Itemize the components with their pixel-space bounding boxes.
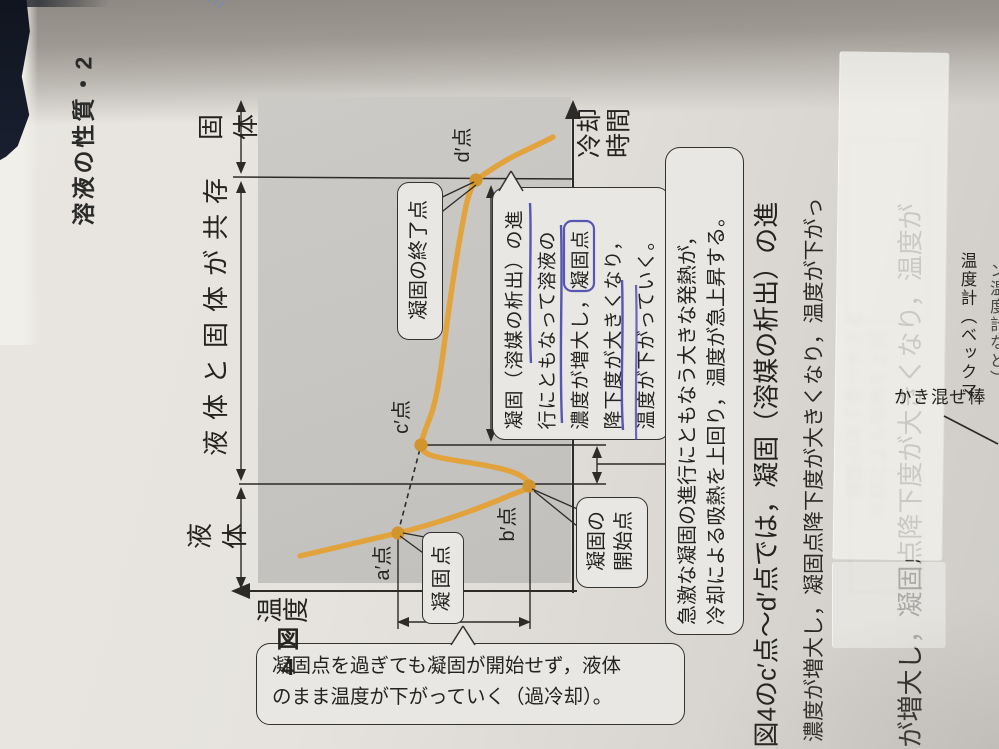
note-supercooling-text: 凝固点を過ぎても凝固が開始せず，液体 のまま温度が下がっていく（過冷却）。 [272,651,672,717]
note-rapid-heat-text: 急激な凝固の進行にともなう大きな発熱が， 冷却による吸熱を上回り，温度が急上昇す… [674,155,732,625]
book-edge-top-sliver [0,0,110,7]
blue-pen-marks [490,185,670,440]
region-label-coexist: 液体と固体が共存 [202,157,232,467]
temp-axis-label: 温度 [252,598,312,626]
region-label-solid: 固体 [215,93,243,155]
point-c-label: c′点 [390,390,414,444]
callout-end-of-freezing-label: 凝固の終了点 [406,185,432,335]
point-d-dot [469,173,482,186]
callout-freezing-point-label: 凝固点 [430,534,454,620]
time-axis-label: 冷却 時間 [576,102,634,158]
point-d-label: d′点 [451,118,475,172]
thermometer-label: 温度計（ベックマ [949,252,979,402]
note-supercooling-notch [450,625,476,646]
point-a-label: a′点 [371,536,395,590]
point-b-dot [522,479,535,492]
stirrer-label: かき混ぜ棒 [894,384,998,412]
photo-corner-shade [700,600,999,749]
callout-start-of-freezing-label: 凝固の 開始点 [584,506,638,576]
point-b-label: b′点 [496,497,520,551]
photographed-textbook-page: 凝固点降下度が大きく 冷却による吸熱を上回 が増大し，凝固点降下度が大きくなり，… [0,0,999,749]
page-header: 溶液の性質・2 [70,51,100,226]
point-c-dot [414,438,427,451]
figure-caption: 図 4 [268,625,308,687]
region-label-liquid: 液体 [204,502,232,564]
